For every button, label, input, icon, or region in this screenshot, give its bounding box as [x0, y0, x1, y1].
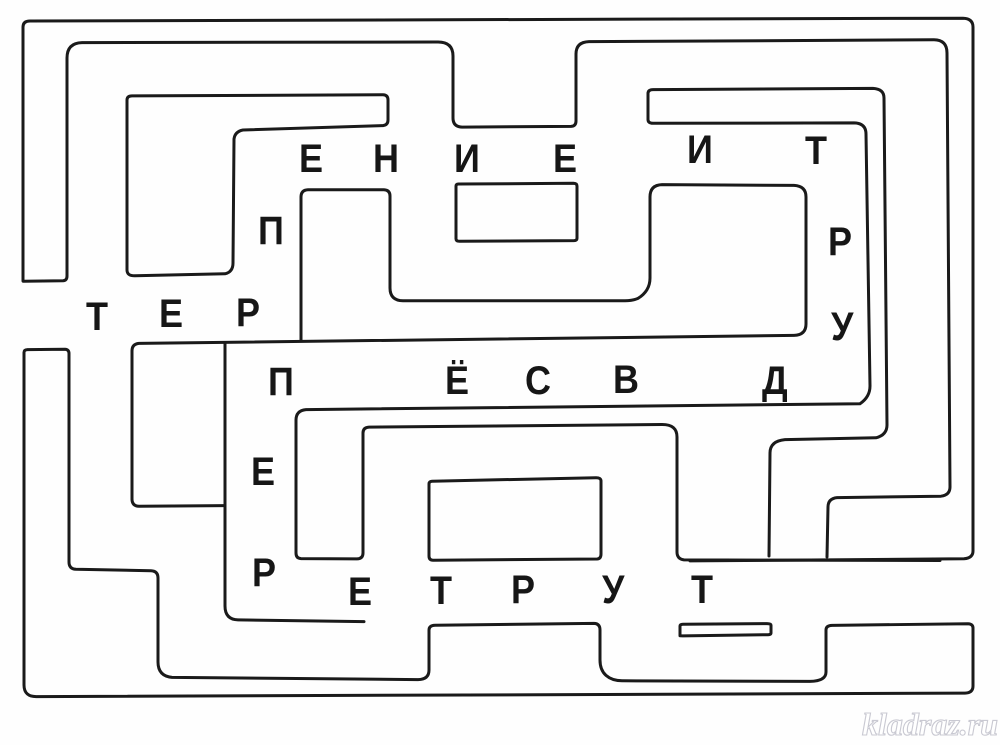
svg-text:Р: Р: [828, 220, 852, 264]
svg-text:Е: Е: [553, 137, 577, 181]
svg-text:П: П: [268, 360, 294, 404]
svg-text:И: И: [687, 128, 713, 172]
svg-text:Е: Е: [348, 570, 372, 614]
svg-text:Р: Р: [511, 568, 535, 612]
svg-text:Р: Р: [236, 291, 260, 335]
svg-text:Е: Е: [299, 137, 323, 181]
svg-text:Т: Т: [691, 568, 713, 612]
svg-text:У: У: [831, 305, 855, 349]
svg-text:Т: Т: [430, 569, 452, 613]
svg-text:У: У: [602, 568, 626, 612]
svg-text:С: С: [525, 359, 551, 403]
svg-text:И: И: [454, 137, 480, 181]
svg-text:Е: Е: [159, 292, 183, 336]
svg-text:Р: Р: [252, 551, 276, 595]
svg-text:П: П: [258, 209, 284, 253]
svg-text:Д: Д: [762, 359, 788, 403]
svg-text:Т: Т: [86, 295, 108, 339]
svg-text:Т: Т: [805, 129, 827, 173]
svg-text:В: В: [613, 358, 639, 402]
svg-text:Ё: Ё: [445, 358, 469, 403]
svg-text:kladraz.ru: kladraz.ru: [862, 706, 998, 742]
svg-text:Н: Н: [373, 137, 399, 181]
svg-text:Е: Е: [251, 450, 275, 494]
